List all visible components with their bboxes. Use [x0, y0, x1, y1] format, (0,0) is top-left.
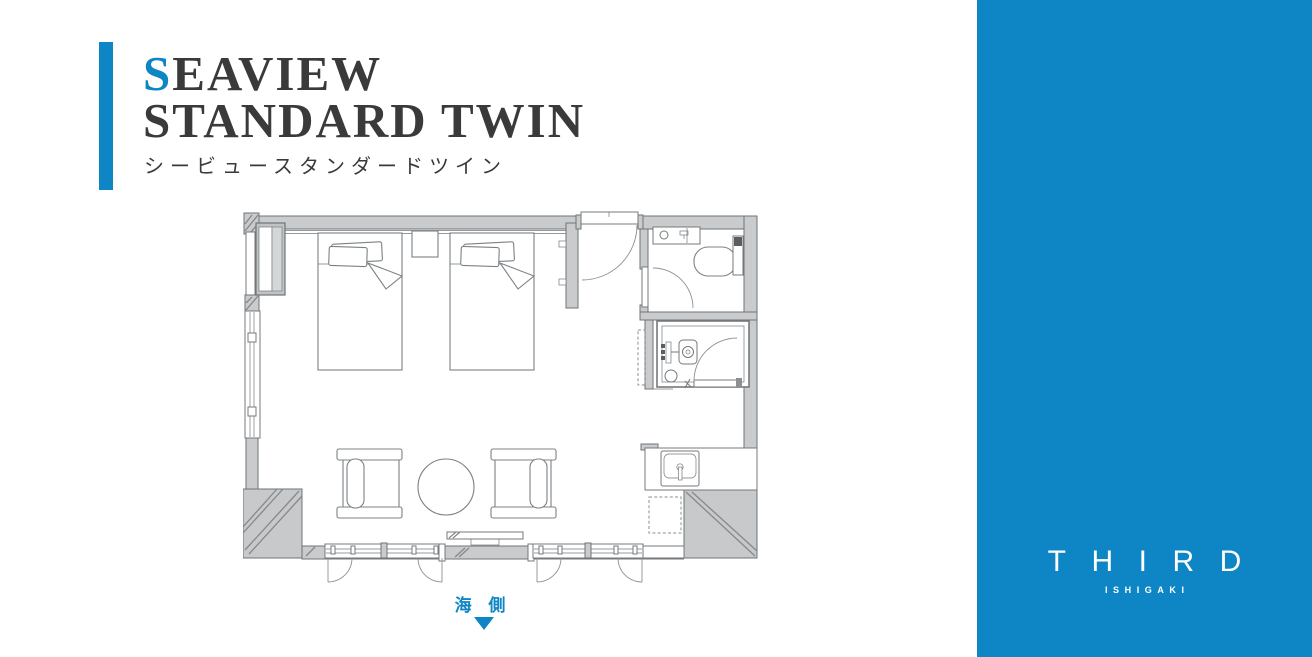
- round-table: [418, 459, 474, 515]
- toilet-door: [642, 267, 693, 308]
- toilet-room: [640, 227, 757, 320]
- window-left: [245, 311, 260, 438]
- bed-right: [450, 233, 534, 370]
- balcony-doors: [302, 543, 684, 582]
- armchair-left: [337, 449, 402, 518]
- structural-column-left: [243, 489, 302, 558]
- shower-room: [638, 320, 749, 389]
- room-title: SEAVIEWSTANDARD TWIN: [143, 50, 585, 144]
- toilet: [694, 236, 743, 276]
- fridge-space: [649, 497, 681, 533]
- entrance-door: [576, 212, 643, 280]
- seaside-label: 海 側: [433, 591, 533, 616]
- window-counter: [447, 532, 523, 545]
- title-accent-bar: [99, 42, 113, 190]
- room-subtitle-ja: シービュースタンダードツイン: [144, 150, 507, 179]
- brand-logo: THIRD: [977, 545, 1312, 579]
- seaside-arrow-icon: [474, 617, 494, 630]
- bed-left: [318, 233, 402, 370]
- armchair-right: [491, 449, 556, 518]
- floor-plan: [243, 205, 763, 635]
- toilet-sink: [653, 227, 700, 244]
- brand-panel: THIRD ISHIGAKI: [977, 0, 1312, 657]
- nightstand: [412, 231, 438, 257]
- washbasin: [641, 444, 757, 490]
- page: SEAVIEWSTANDARD TWIN シービュースタンダードツイン: [0, 0, 1312, 657]
- title-line1: SEAVIEW: [143, 50, 585, 97]
- title-line2: STANDARD TWIN: [143, 97, 585, 144]
- coat-rack-partition: [559, 223, 578, 308]
- structural-column-right: [643, 490, 757, 558]
- tv-cabinet: [256, 223, 285, 295]
- brand-location: ISHIGAKI: [977, 585, 1312, 595]
